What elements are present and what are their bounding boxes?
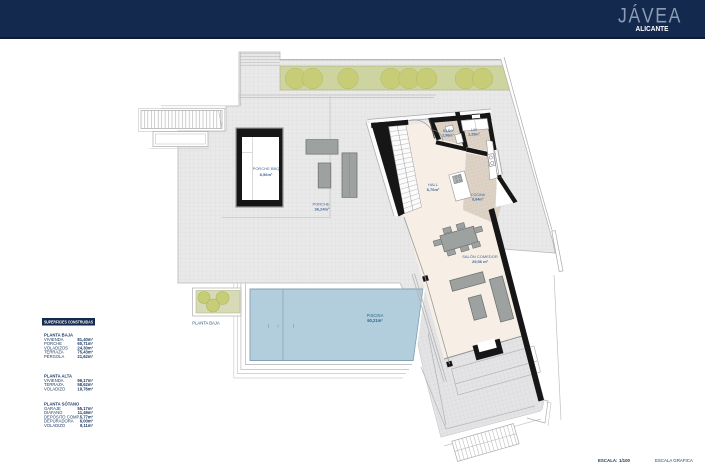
svg-text:1/100: 1/100	[619, 458, 631, 463]
svg-text:LAV: LAV	[471, 128, 478, 132]
svg-text:21,62m²: 21,62m²	[77, 354, 93, 359]
svg-text:VOLADIZO: VOLADIZO	[44, 386, 66, 391]
svg-text:COCINA: COCINA	[471, 193, 486, 197]
svg-text:VOLADIZO: VOLADIZO	[44, 423, 66, 428]
svg-text:PÉRGOLA: PÉRGOLA	[44, 354, 64, 359]
svg-text:PLANTA BAJA: PLANTA BAJA	[192, 321, 220, 326]
svg-text:19,76m²: 19,76m²	[77, 386, 93, 391]
svg-text:SUPERFICIES CONSTRUIDAS: SUPERFICIES CONSTRUIDAS	[44, 319, 93, 324]
svg-text:ESCALA GRAFICA: ESCALA GRAFICA	[655, 458, 693, 463]
svg-text:8,56m²: 8,56m²	[260, 172, 273, 177]
svg-text:JÁVEA: JÁVEA	[618, 3, 682, 28]
svg-text:29,56 m²: 29,56 m²	[472, 259, 489, 264]
svg-text:PORCHE BBQ: PORCHE BBQ	[253, 166, 280, 171]
svg-text:2,25m²: 2,25m²	[468, 132, 480, 136]
svg-text:36,24m²: 36,24m²	[315, 207, 331, 212]
svg-text:8,84m²: 8,84m²	[472, 197, 484, 201]
svg-text:ESCALA:: ESCALA:	[598, 458, 618, 463]
svg-text:ALICANTE: ALICANTE	[636, 26, 669, 33]
svg-text:2,96m²: 2,96m²	[442, 133, 454, 137]
svg-text:9,11m²: 9,11m²	[80, 423, 94, 428]
svg-text:8,76m²: 8,76m²	[427, 187, 440, 192]
svg-text:BAÑO: BAÑO	[443, 128, 453, 133]
svg-text:60,21m²: 60,21m²	[367, 318, 383, 323]
